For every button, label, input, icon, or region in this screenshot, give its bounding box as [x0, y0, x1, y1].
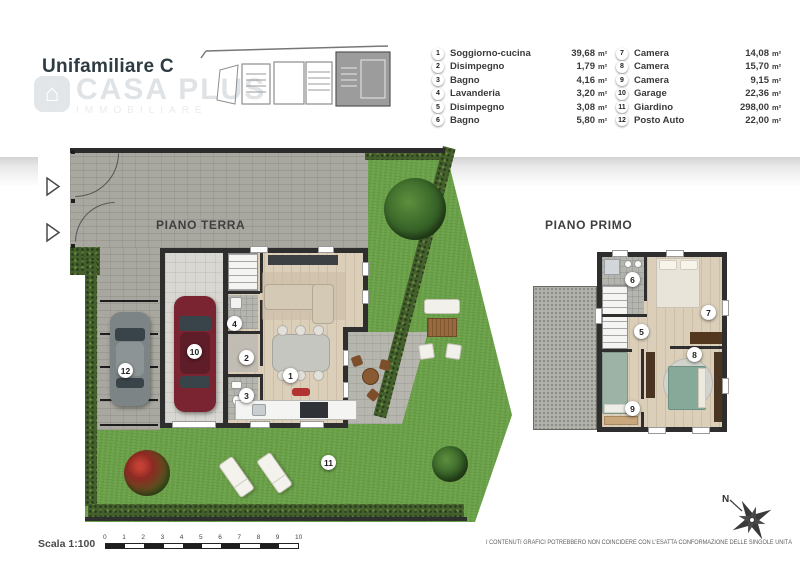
- gray-car: [110, 312, 150, 406]
- washing-machine: [230, 297, 242, 309]
- ground-floor-label: PIANO TERRA: [156, 218, 245, 232]
- window: [362, 262, 369, 276]
- gate-arrow-icon: [46, 223, 62, 243]
- plan-top-edge: [70, 148, 445, 153]
- page-title: Unifamiliare C: [42, 56, 174, 78]
- garden-chair: [445, 343, 462, 360]
- gate-post: [71, 244, 75, 248]
- terrace-hatch: [533, 286, 597, 430]
- floorplan-page: ⌂ CASA PLUS IMMOBILIARE Unifamiliare C 1…: [0, 0, 800, 566]
- kitchen-mat: [292, 388, 310, 396]
- window: [343, 382, 349, 398]
- interior-wall: [228, 331, 260, 334]
- room-badge-2: 2: [239, 350, 254, 365]
- room-badge-10: 10: [187, 344, 202, 359]
- dining-chair: [277, 325, 288, 336]
- window: [318, 246, 334, 253]
- plan-bottom-edge: [85, 517, 467, 521]
- hedge-bottom: [88, 504, 464, 518]
- gate-post: [71, 199, 75, 203]
- gate-post: [71, 150, 75, 154]
- first-floor-interior: [602, 257, 722, 427]
- north-label: N: [722, 494, 729, 505]
- interior-wall: [228, 291, 260, 294]
- patio-table: [362, 368, 379, 385]
- sofa-chaise: [312, 284, 334, 324]
- window: [362, 290, 369, 304]
- first-floor-label: PIANO PRIMO: [545, 218, 632, 232]
- window: [343, 350, 349, 366]
- dining-table: [272, 334, 330, 372]
- window: [250, 421, 270, 428]
- stove: [300, 402, 328, 418]
- staircase: [228, 253, 258, 291]
- window: [250, 246, 268, 253]
- compass-rose-icon: N: [712, 484, 784, 546]
- dining-chair: [313, 325, 324, 336]
- interior-wall: [228, 374, 260, 377]
- room-badge-3: 3: [239, 388, 254, 403]
- gate-arrow-icon: [46, 177, 62, 197]
- room-badge-12: 12: [118, 363, 133, 378]
- tv-unit: [268, 255, 338, 265]
- parking-line: [100, 300, 158, 302]
- hedge-left: [85, 260, 97, 506]
- room-badge-4: 4: [227, 316, 242, 331]
- sink-icon: [231, 381, 242, 389]
- parking-line: [100, 424, 158, 426]
- kitchen-sink: [252, 404, 266, 416]
- garden-table: [427, 318, 457, 337]
- flower-bush-icon: [124, 450, 170, 496]
- dining-chair: [295, 325, 306, 336]
- garage-door-opening: [172, 421, 216, 428]
- tree-icon: [384, 178, 446, 240]
- room-badge-11: 11: [321, 455, 336, 470]
- garden-chair: [418, 343, 435, 360]
- garden-sofa: [424, 299, 460, 314]
- dining-chair: [313, 370, 324, 381]
- bush-icon: [432, 446, 468, 482]
- window: [300, 421, 324, 428]
- room-badge-1: 1: [283, 368, 298, 383]
